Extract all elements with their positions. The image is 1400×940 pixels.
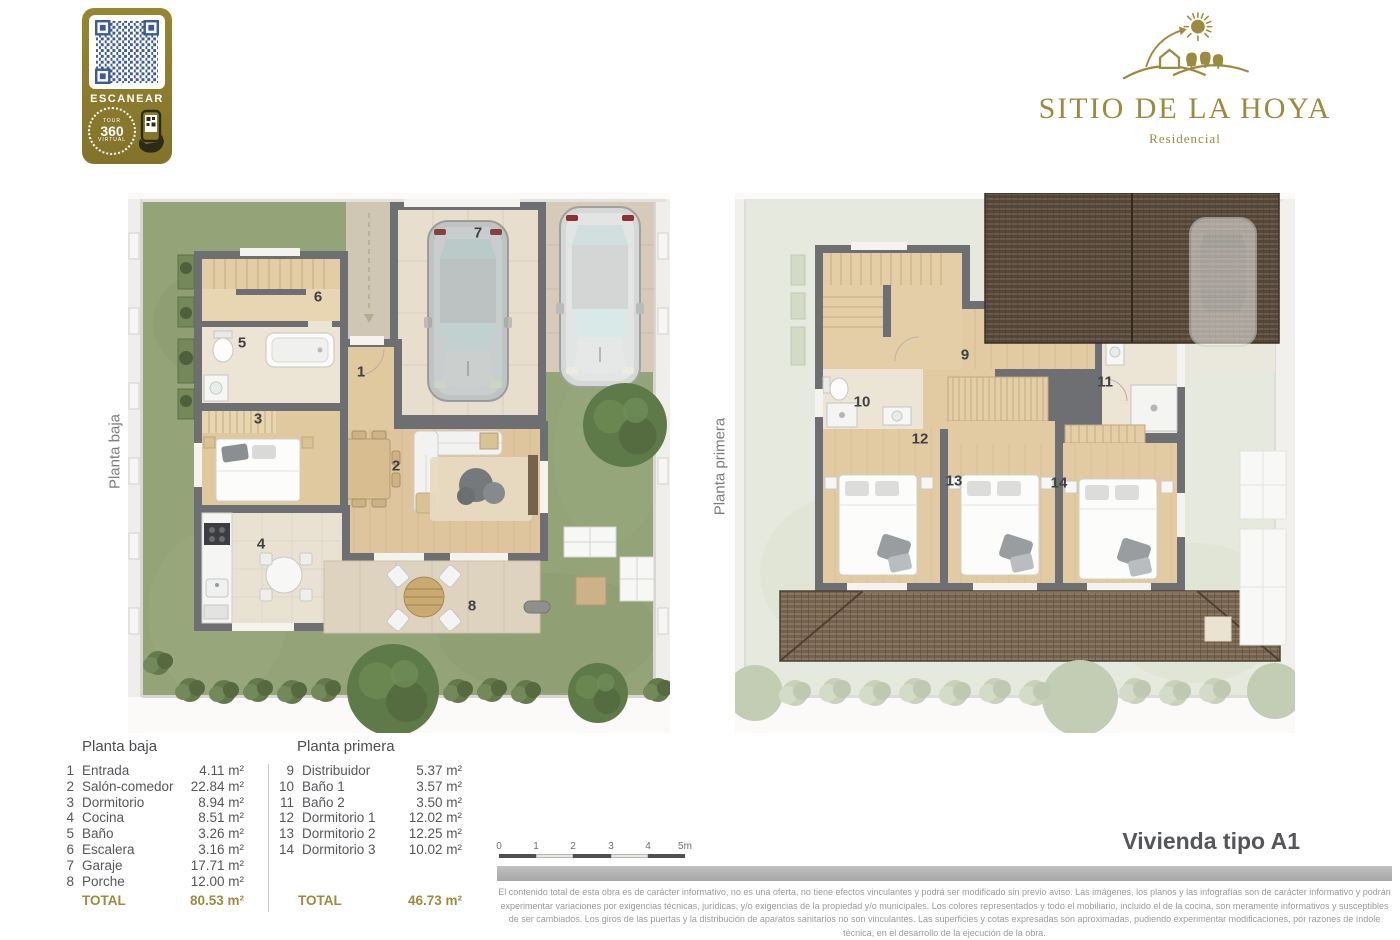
legend-table-ground: 1Entrada4.11 m² 2Salón-comedor22.84 m² 3… — [56, 763, 244, 889]
legend-row: 7Garaje17.71 m² — [56, 858, 244, 874]
logo-subtitle: Residencial — [1035, 131, 1335, 147]
logo-icon — [1100, 6, 1270, 92]
qr-code — [94, 20, 160, 84]
legend-title-first: Planta primera — [297, 738, 395, 755]
legend-table-first: 9Distribuidor5.37 m² 10Baño 13.57 m² 11B… — [272, 763, 462, 858]
logo-title: SITIO DE LA HOYA — [1035, 92, 1335, 126]
scale-bar-segments — [499, 854, 685, 858]
room-marker: 12 — [912, 431, 929, 448]
room-marker: 8 — [468, 598, 476, 615]
room-marker: 5 — [238, 335, 246, 352]
room-marker: 6 — [314, 289, 322, 306]
bathtub-icon — [266, 333, 334, 367]
legend-row: 12Dormitorio 112.02 m² — [272, 810, 462, 826]
legend-row: 9Distribuidor5.37 m² — [272, 763, 462, 779]
legend-row: 8Porche12.00 m² — [56, 874, 244, 890]
sun-icon — [1191, 20, 1205, 34]
legend-row: 1Entrada4.11 m² — [56, 763, 244, 779]
legal-disclaimer: El contenido total de esta obra es de ca… — [497, 886, 1392, 940]
legend-row: 2Salón-comedor22.84 m² — [56, 779, 244, 795]
footer-divider-bar — [497, 866, 1392, 881]
legend-row: 13Dormitorio 212.25 m² — [272, 826, 462, 842]
brand-logo: SITIO DE LA HOYA Residencial — [1035, 6, 1335, 147]
scale-bar: 0 1 2 3 4 5m — [497, 841, 689, 861]
plan-side-label: Planta primera — [712, 402, 729, 532]
scale-tick: 1 — [533, 841, 539, 852]
legend-title-ground: Planta baja — [82, 738, 157, 755]
stove-icon — [204, 523, 230, 545]
house-icon — [1160, 50, 1179, 68]
scale-tick: 0 — [496, 841, 502, 852]
trees-icon — [1186, 52, 1223, 70]
phone-scan-icon — [136, 109, 166, 153]
tree-icon — [583, 383, 667, 467]
total-row-first: TOTAL 46.73 m² — [272, 893, 462, 908]
floor-plan-ground: Planta baja — [128, 193, 670, 733]
scale-tick: 2 — [570, 841, 576, 852]
unit-type-title: Vivienda tipo A1 — [1000, 828, 1300, 855]
floor-plan-first: Planta primera — [735, 193, 1295, 733]
room-marker: 9 — [961, 347, 969, 364]
room-marker: 11 — [1097, 374, 1113, 391]
room-marker: 14 — [1051, 475, 1068, 492]
room-marker: 3 — [254, 411, 262, 428]
legend-row: 4Cocina8.51 m² — [56, 810, 244, 826]
plan-side-label: Planta baja — [107, 387, 124, 517]
first-floor-plan-svg — [735, 193, 1295, 733]
legend-row: 11Baño 23.50 m² — [272, 795, 462, 811]
room-marker: 7 — [474, 225, 482, 242]
car-icon — [1190, 218, 1256, 346]
legend-row: 5Baño3.26 m² — [56, 826, 244, 842]
room-marker: 1 — [357, 364, 365, 381]
scale-tick: 4 — [645, 841, 651, 852]
qr-360-badge: ESCANEAR TOUR 360 VIRTUAL — [82, 8, 172, 164]
legend-row: 6Escalera3.16 m² — [56, 842, 244, 858]
scale-tick: 5m — [678, 841, 692, 852]
toilet-icon — [213, 331, 233, 362]
room-marker: 10 — [854, 394, 871, 411]
tour-360-icon: TOUR 360 VIRTUAL — [88, 107, 136, 155]
sink-icon — [204, 375, 228, 401]
scale-tick: 3 — [608, 841, 614, 852]
bed-icon — [204, 437, 313, 501]
qr-panel — [89, 15, 165, 89]
room-marker: 4 — [257, 536, 265, 553]
legend-divider — [268, 764, 269, 912]
room-marker: 13 — [946, 473, 963, 490]
legend-row: 3Dormitorio8.94 m² — [56, 795, 244, 811]
legend-row: 10Baño 13.57 m² — [272, 779, 462, 795]
scan-label: ESCANEAR — [90, 93, 164, 105]
legend-row: 14Dormitorio 310.02 m² — [272, 842, 462, 858]
room-marker: 2 — [392, 458, 400, 475]
total-row-ground: TOTAL 80.53 m² — [56, 893, 244, 908]
